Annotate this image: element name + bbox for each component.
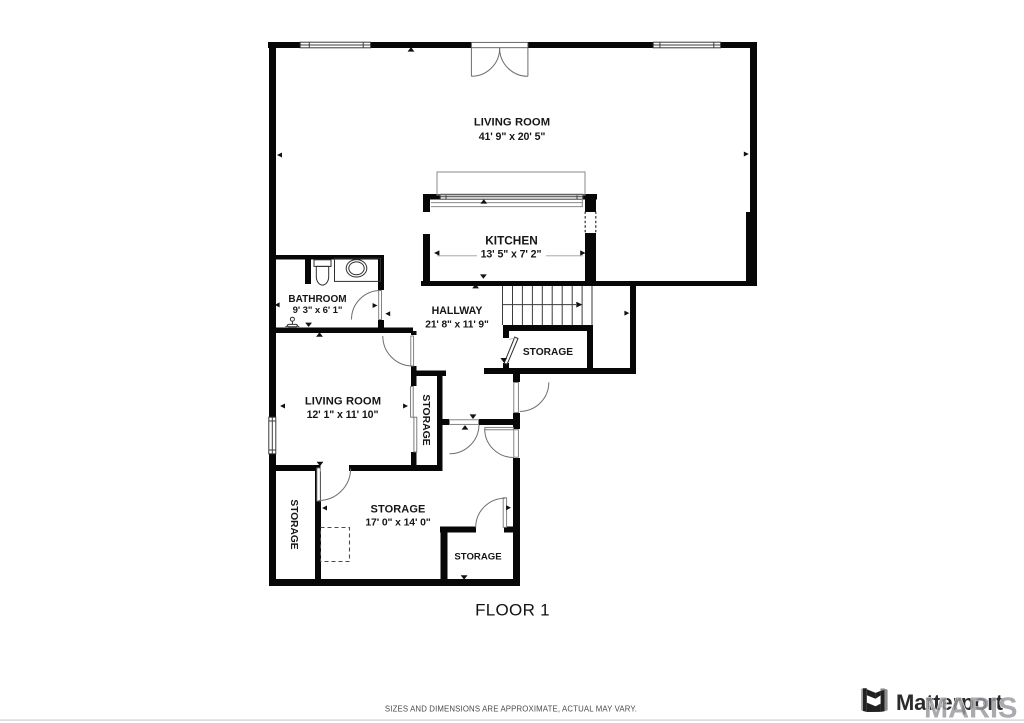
- svg-text:HALLWAY: HALLWAY: [432, 305, 483, 317]
- svg-text:LIVING ROOM: LIVING ROOM: [305, 396, 381, 408]
- svg-text:FLOOR 1: FLOOR 1: [475, 601, 550, 620]
- svg-text:41' 9" x 20' 5": 41' 9" x 20' 5": [479, 131, 546, 143]
- svg-text:STORAGE: STORAGE: [523, 347, 573, 358]
- svg-text:STORAGE: STORAGE: [288, 499, 299, 549]
- svg-text:MARIS: MARIS: [924, 693, 1017, 723]
- svg-text:12' 1" x 11' 10": 12' 1" x 11' 10": [307, 409, 379, 421]
- svg-text:SIZES AND DIMENSIONS ARE APPRO: SIZES AND DIMENSIONS ARE APPROXIMATE, AC…: [385, 705, 637, 714]
- svg-text:BATHROOM: BATHROOM: [288, 294, 346, 305]
- svg-text:9' 3" x 6' 1": 9' 3" x 6' 1": [293, 305, 343, 316]
- svg-text:13' 5" x 7' 2": 13' 5" x 7' 2": [481, 249, 542, 261]
- svg-text:STORAGE: STORAGE: [371, 503, 426, 515]
- svg-text:STORAGE: STORAGE: [420, 394, 431, 445]
- svg-text:21' 8" x 11' 9": 21' 8" x 11' 9": [425, 320, 489, 331]
- svg-text:KITCHEN: KITCHEN: [485, 234, 537, 248]
- svg-text:STORAGE: STORAGE: [454, 551, 502, 562]
- svg-text:17' 0" x 14' 0": 17' 0" x 14' 0": [365, 518, 430, 529]
- svg-text:LIVING ROOM: LIVING ROOM: [474, 117, 550, 129]
